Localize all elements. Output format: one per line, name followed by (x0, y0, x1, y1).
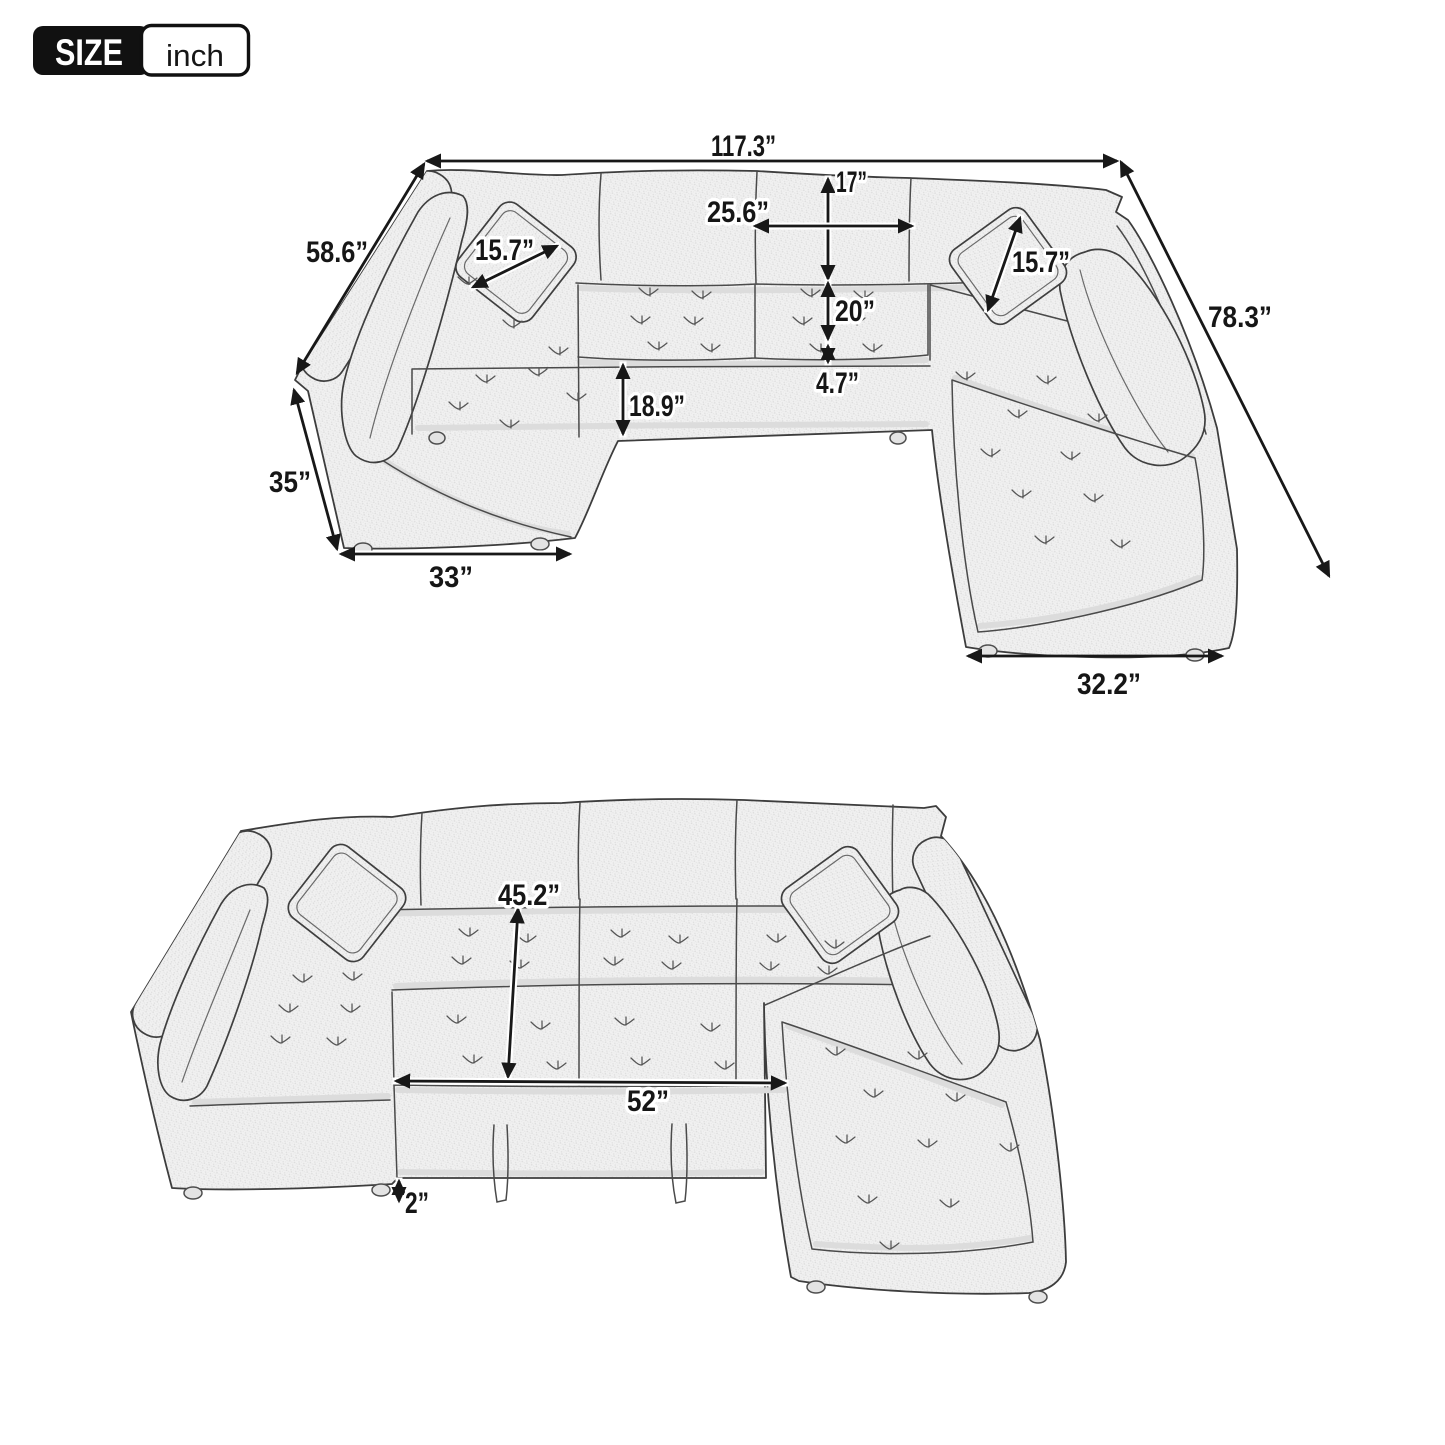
svg-text:58.6”: 58.6” (306, 236, 368, 269)
svg-text:52”: 52” (627, 1085, 669, 1118)
svg-text:17”: 17” (836, 166, 867, 199)
svg-text:35”: 35” (269, 466, 311, 499)
svg-text:45.2”: 45.2” (498, 879, 560, 912)
svg-text:78.3”: 78.3” (1208, 301, 1272, 334)
svg-text:18.9”: 18.9” (629, 390, 685, 423)
svg-text:33”: 33” (429, 561, 473, 594)
svg-text:20”: 20” (835, 295, 875, 328)
svg-text:15.7”: 15.7” (1012, 246, 1070, 279)
svg-text:4.7”: 4.7” (816, 367, 859, 400)
svg-text:15.7”: 15.7” (475, 234, 534, 267)
svg-text:2”: 2” (405, 1187, 429, 1220)
svg-text:inch: inch (166, 38, 224, 73)
svg-text:32.2”: 32.2” (1077, 668, 1141, 701)
svg-text:25.6”: 25.6” (707, 196, 769, 229)
svg-text:117.3”: 117.3” (711, 130, 776, 163)
svg-text:SIZE: SIZE (55, 32, 123, 73)
